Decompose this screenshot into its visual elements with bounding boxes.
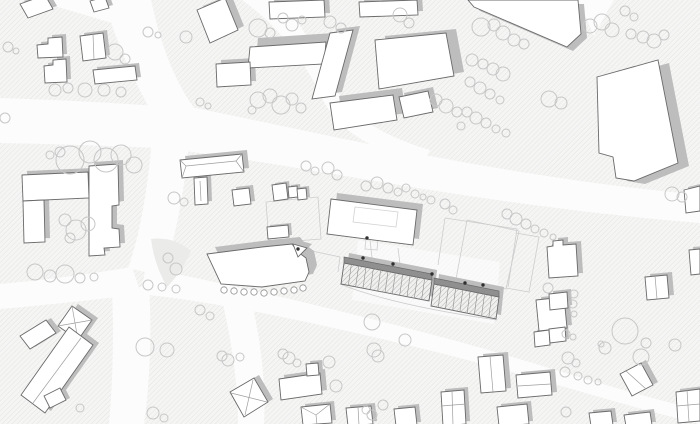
building-house-10 — [497, 404, 529, 424]
site-plan-map — [0, 0, 700, 424]
building-school-left-wing — [23, 200, 45, 243]
colonnade-column — [300, 285, 306, 291]
building-school-bar — [22, 172, 89, 201]
site-plan — [0, 0, 700, 424]
colonnade-column — [221, 287, 227, 293]
building-small-block — [216, 62, 251, 87]
colonnade-column — [271, 289, 277, 295]
building-hut-pair-2 — [549, 327, 566, 343]
colonnade-column — [281, 288, 287, 294]
building-house-7-annex — [549, 292, 568, 310]
colonnade-column — [251, 289, 257, 295]
road-down-left — [109, 286, 150, 424]
entrance-dot — [430, 272, 433, 275]
colonnade-column — [241, 289, 247, 295]
entrance-dot — [481, 283, 484, 286]
colonnade-column — [261, 290, 267, 296]
building-house-6 — [441, 390, 466, 424]
entrance-dot — [463, 281, 466, 284]
building-house-8 — [478, 355, 506, 393]
colonnade-column — [291, 287, 297, 293]
building-hut-pair-1 — [534, 330, 550, 347]
entrance-dot — [391, 262, 394, 265]
entrance-dot — [361, 256, 364, 259]
building-house-4 — [346, 406, 373, 424]
building-small-house-1 — [232, 188, 251, 206]
entrance-dot — [365, 236, 368, 239]
building-house-13 — [589, 411, 613, 424]
building-hut-2 — [288, 186, 298, 198]
building-hut-1 — [272, 183, 288, 201]
building-shed — [267, 225, 289, 239]
building-hut-3 — [297, 188, 307, 200]
building-house-2-annex — [306, 363, 319, 376]
colonnade-column — [231, 288, 237, 294]
entrance-dot — [296, 247, 299, 250]
building-e-edge-2 — [689, 249, 700, 275]
building-house-5 — [394, 407, 417, 424]
building-top-row-1 — [269, 0, 325, 19]
building-top-row-2 — [359, 0, 418, 17]
